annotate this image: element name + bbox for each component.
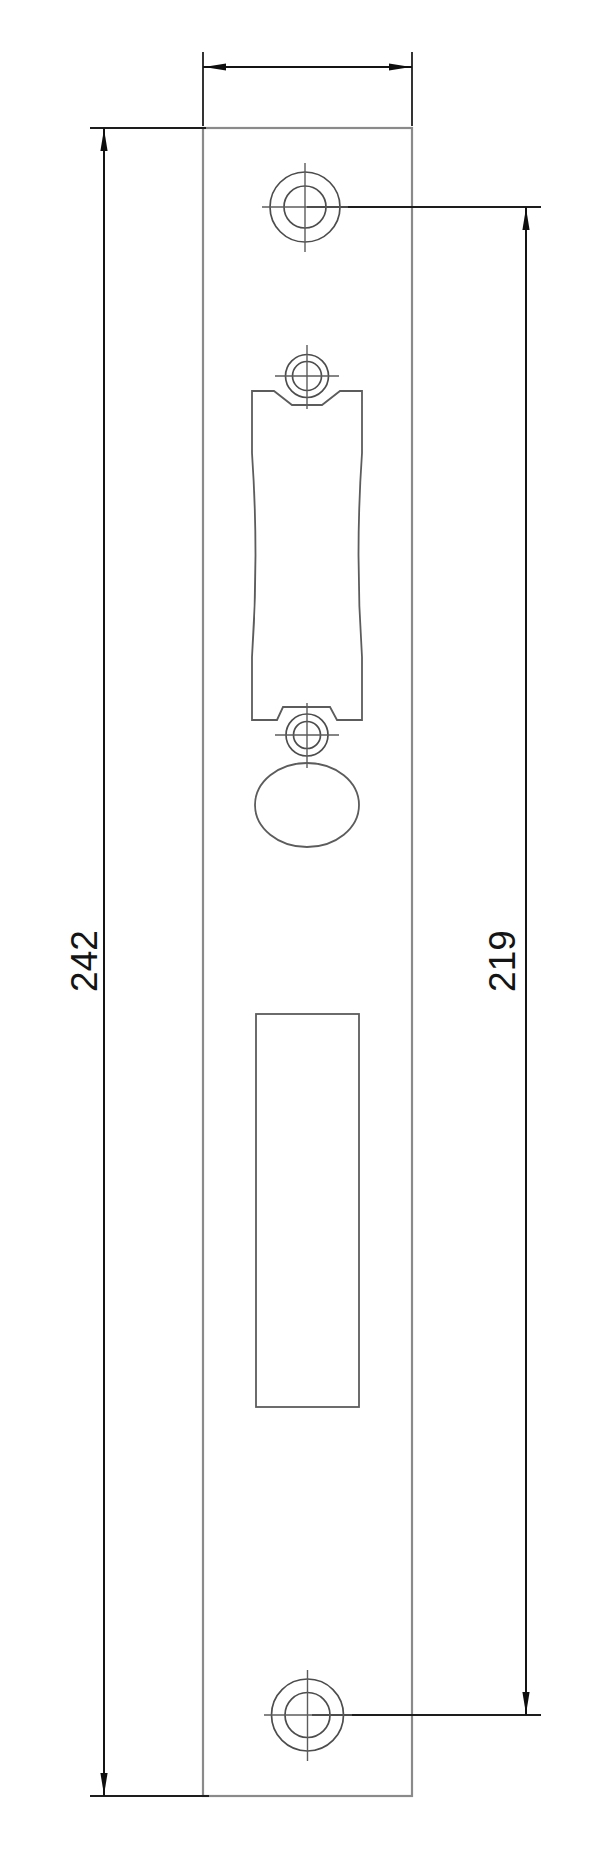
hole-spacing-dimension: 219 [307,207,541,1715]
width-dimension [203,52,412,126]
arrowhead-up-icon [522,208,529,230]
hole-spacing-label: 219 [482,930,523,992]
arrowhead-down-icon [522,1692,529,1714]
strike-plate-drawing: 242 219 [0,0,600,1849]
top-screw-hole [262,163,348,252]
drawing-canvas: 242 219 [0,0,600,1849]
lower-middle-screw-hole [275,703,339,768]
arrowhead-left-icon [204,63,226,70]
arrowhead-right-icon [389,63,411,70]
arrowhead-down-icon [100,1773,107,1795]
lock-case-cutout [256,1014,359,1407]
overall-height-dimension: 242 [64,128,210,1796]
bottom-screw-hole [264,1670,352,1761]
latch-cutout [252,391,362,720]
arrowhead-up-icon [100,129,107,151]
deadbolt-hole [255,763,359,847]
overall-height-label: 242 [64,930,105,992]
